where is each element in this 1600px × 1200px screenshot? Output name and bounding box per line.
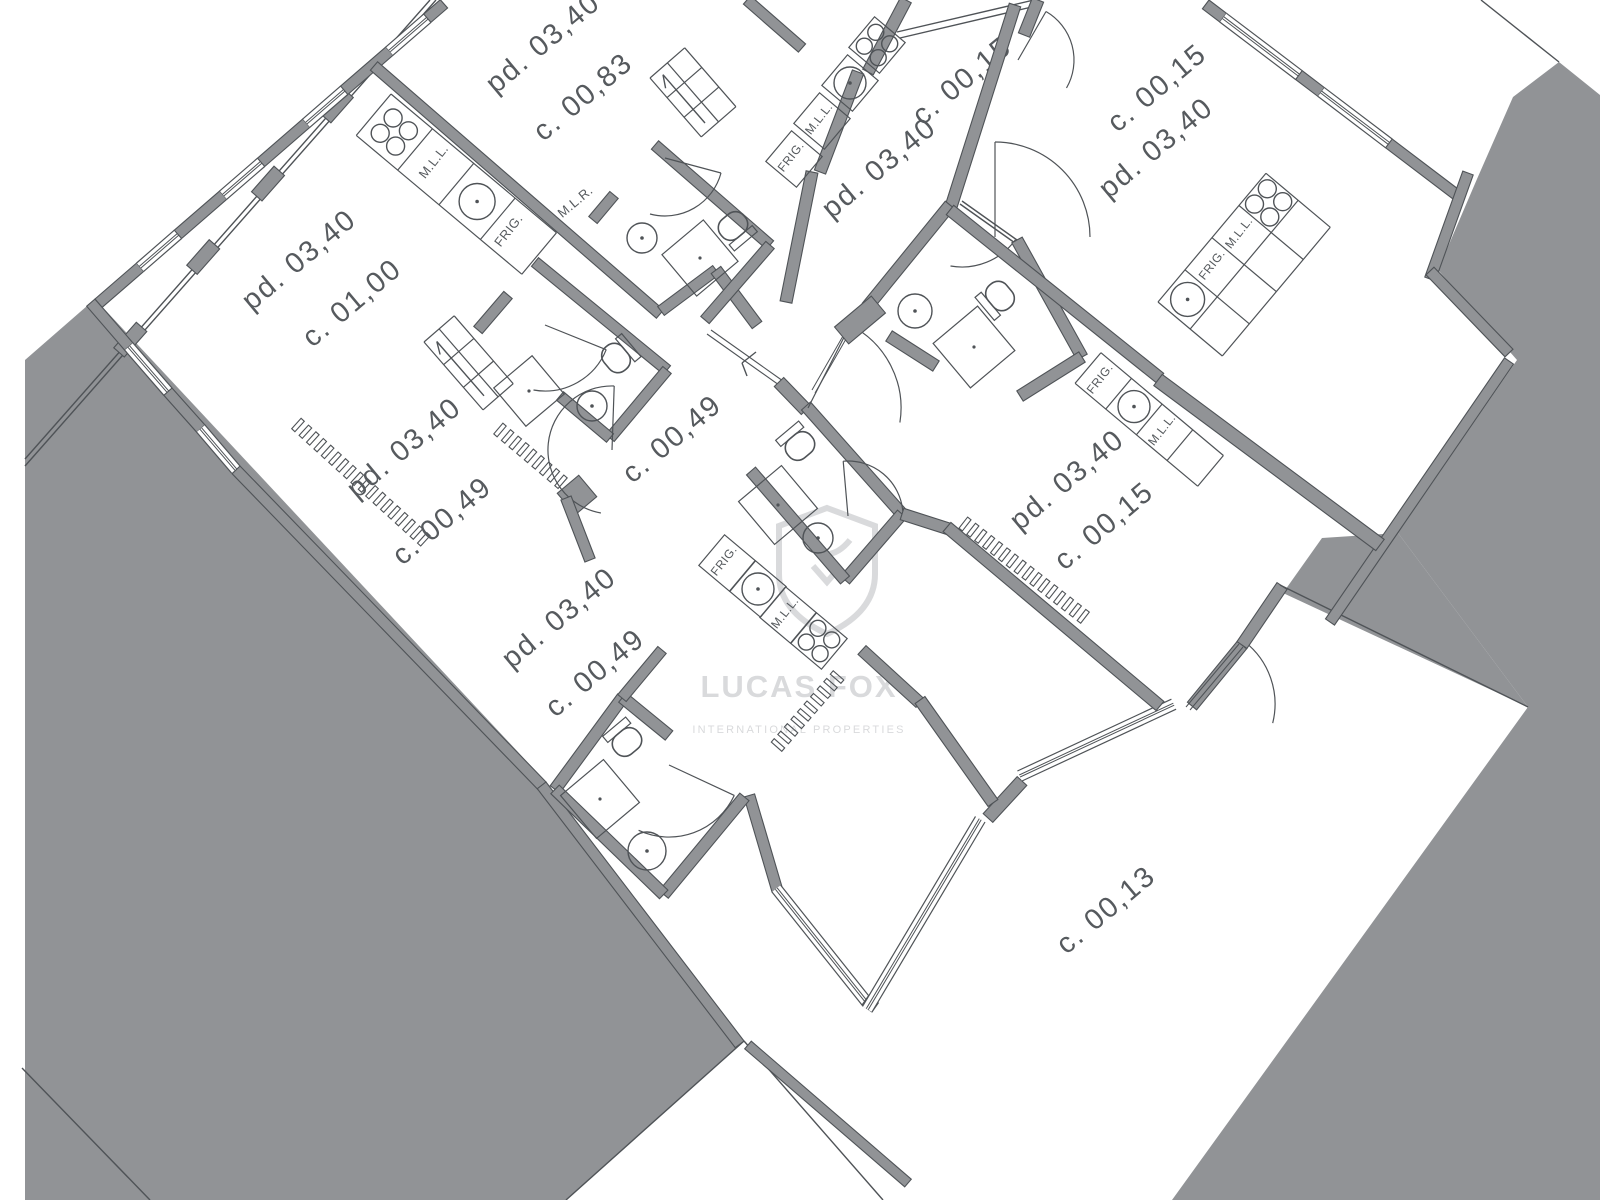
svg-text:LUCAS FOX: LUCAS FOX: [700, 669, 897, 704]
